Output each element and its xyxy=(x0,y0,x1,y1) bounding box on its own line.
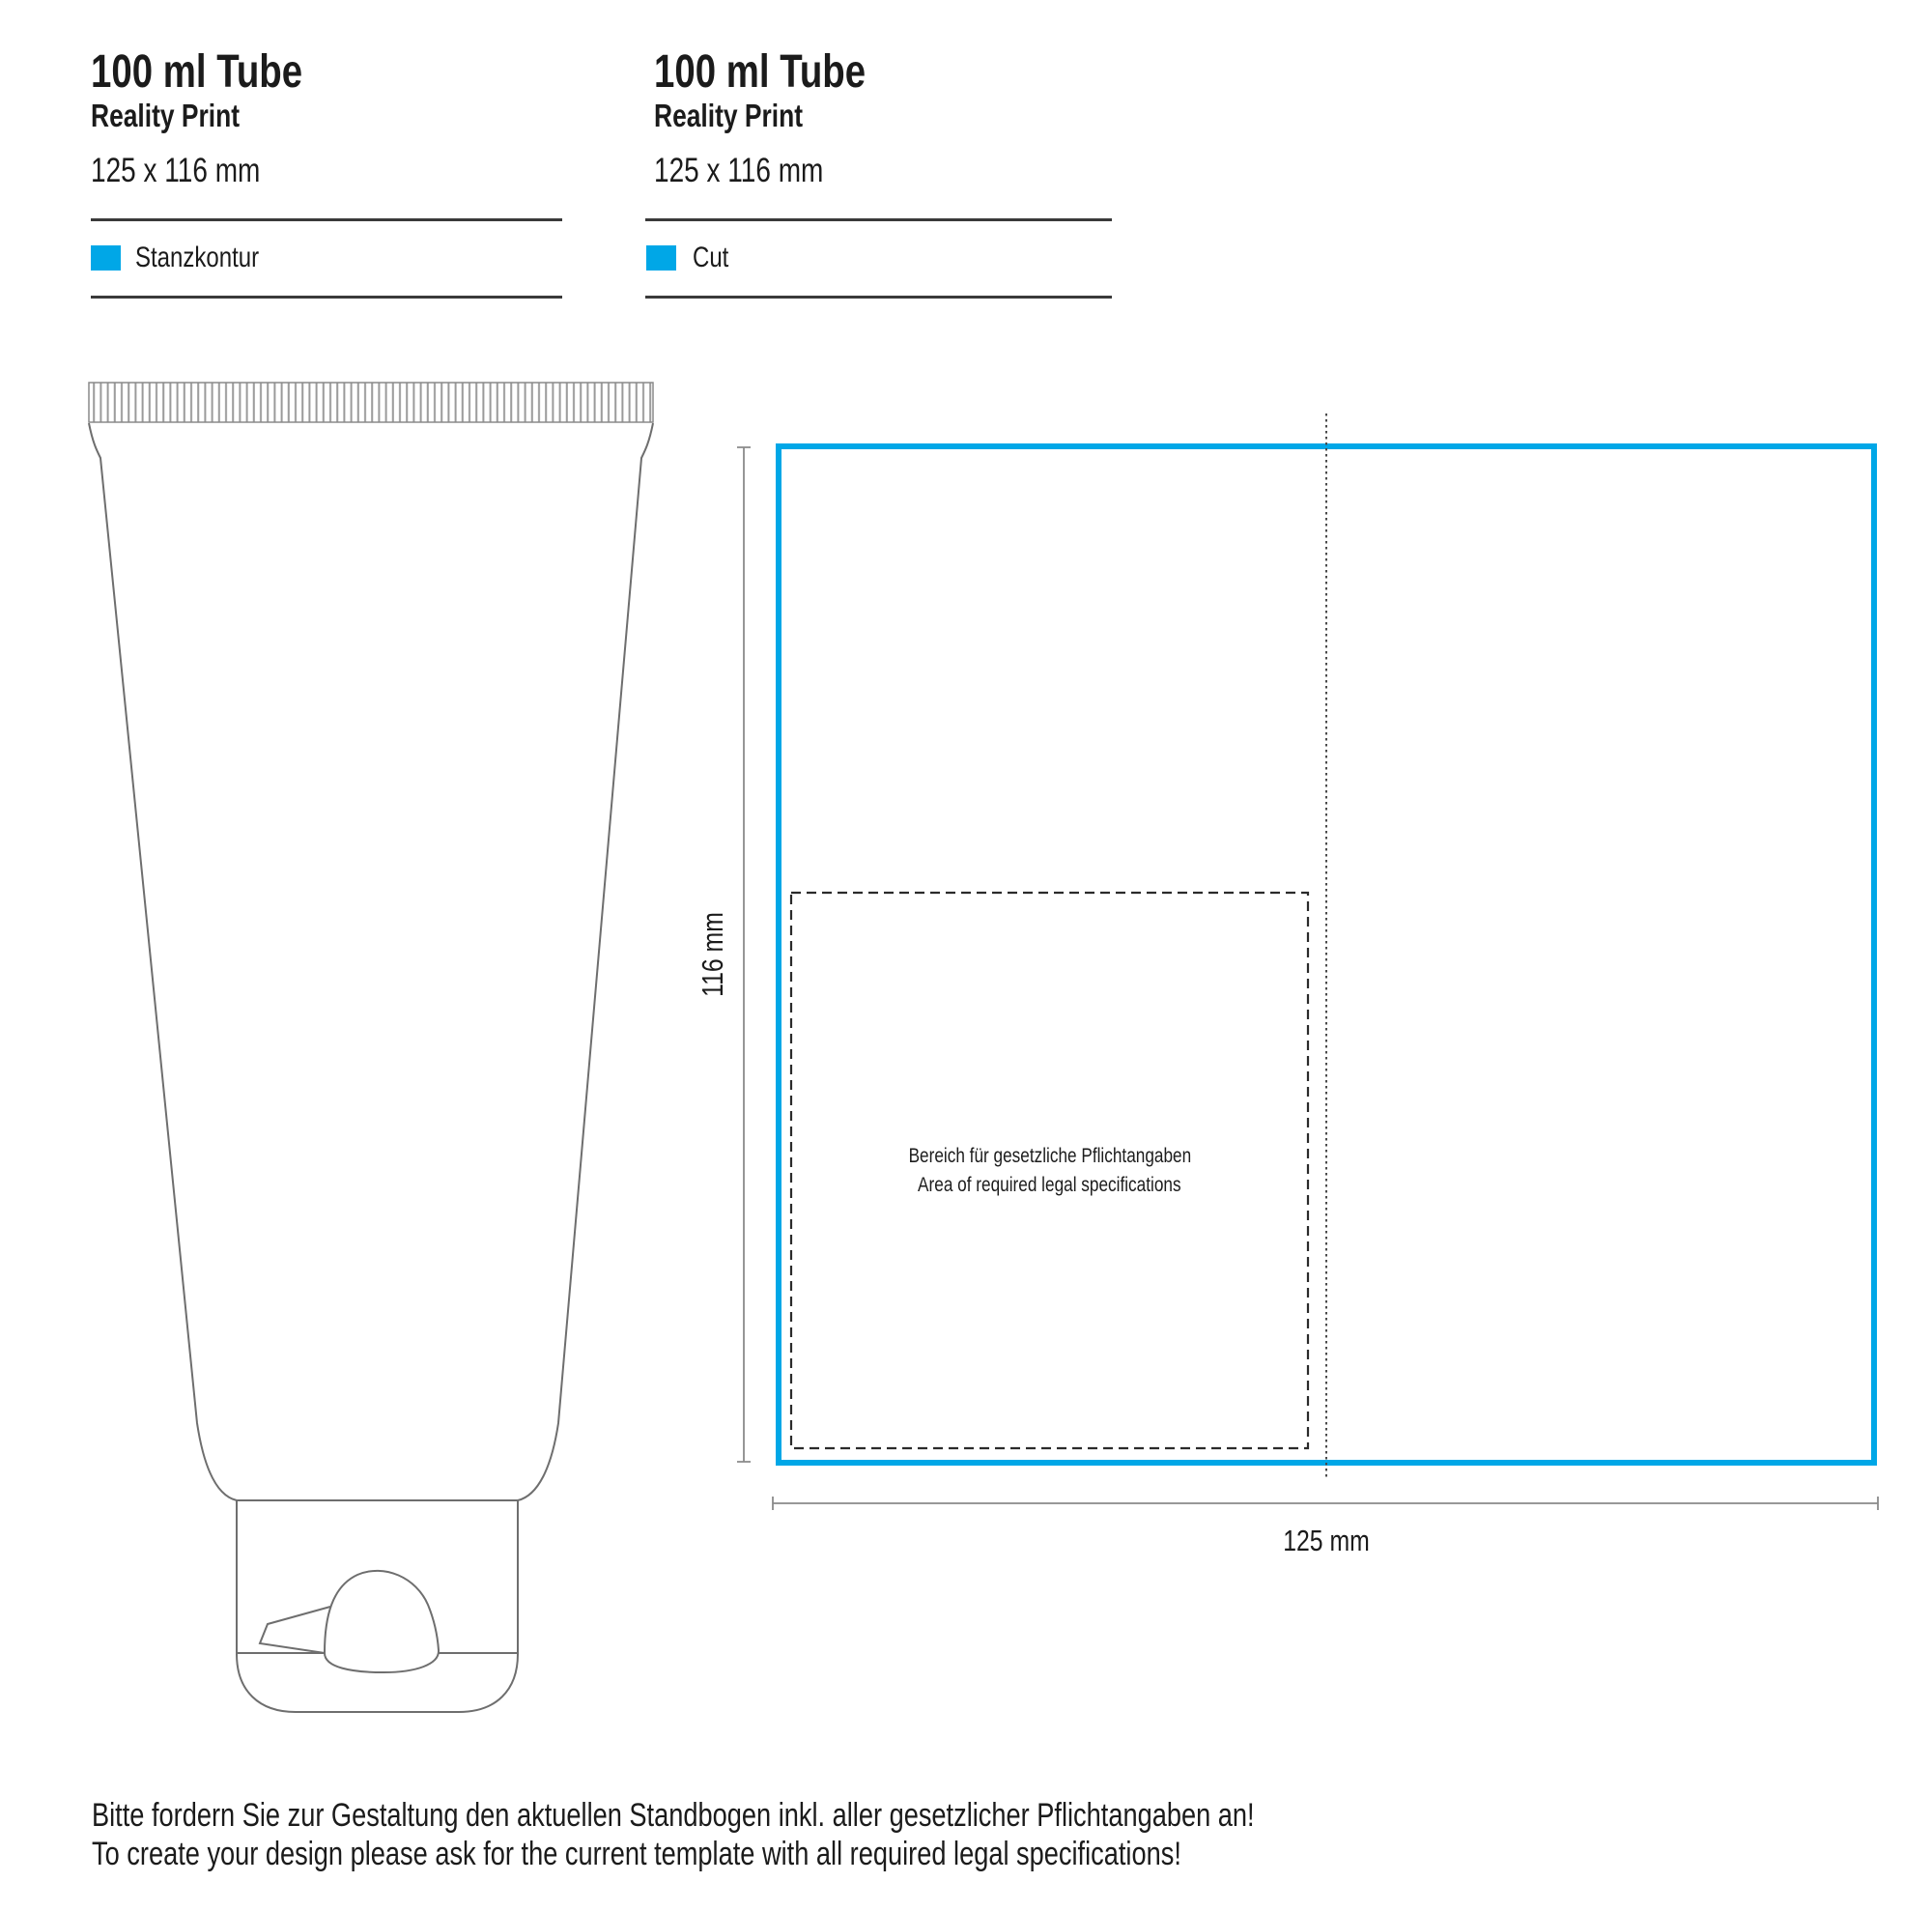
divider-line xyxy=(645,296,1112,299)
legal-area-note-en: Area of required legal specifications xyxy=(918,1171,1180,1199)
size-text: 125 x 116 mm xyxy=(91,153,260,190)
divider-line xyxy=(91,218,562,221)
cap-spout-nozzle xyxy=(260,1607,330,1653)
legal-area-note: Bereich für gesetzliche Pflichtangaben A… xyxy=(791,893,1308,1448)
tube-body-outline xyxy=(89,423,653,1500)
legal-area-note-de: Bereich für gesetzliche Pflichtangaben xyxy=(908,1142,1191,1170)
footer-note: Bitte fordern Sie zur Gestaltung den akt… xyxy=(92,1796,1546,1873)
size-text: 125 x 116 mm xyxy=(654,153,823,190)
page-title: 100 ml Tube xyxy=(91,48,302,97)
print-template-sheet: 100 ml Tube Reality Print 125 x 116 mm S… xyxy=(0,0,1932,1911)
legend-color-swatch xyxy=(91,245,121,271)
cap-spout-dome xyxy=(325,1571,439,1672)
legend-color-swatch xyxy=(646,245,676,271)
height-dimension-label: 116 mm xyxy=(696,912,730,997)
tube-outline-drawing xyxy=(58,375,676,1727)
height-dimension-line xyxy=(737,447,751,1462)
tube-crimp-seal xyxy=(89,383,653,422)
width-dimension-line xyxy=(773,1497,1878,1510)
tube-cap-outline xyxy=(237,1500,518,1712)
legend-label: Stanzkontur xyxy=(135,242,259,274)
divider-line xyxy=(645,218,1112,221)
page-subtitle: Reality Print xyxy=(654,99,803,133)
page-title: 100 ml Tube xyxy=(654,48,866,97)
width-dimension-label: 125 mm xyxy=(1283,1524,1370,1558)
footer-note-en: To create your design please ask for the… xyxy=(92,1835,1255,1873)
legend-label: Cut xyxy=(693,242,728,274)
divider-line xyxy=(91,296,562,299)
page-subtitle: Reality Print xyxy=(91,99,240,133)
footer-note-de: Bitte fordern Sie zur Gestaltung den akt… xyxy=(92,1796,1255,1835)
